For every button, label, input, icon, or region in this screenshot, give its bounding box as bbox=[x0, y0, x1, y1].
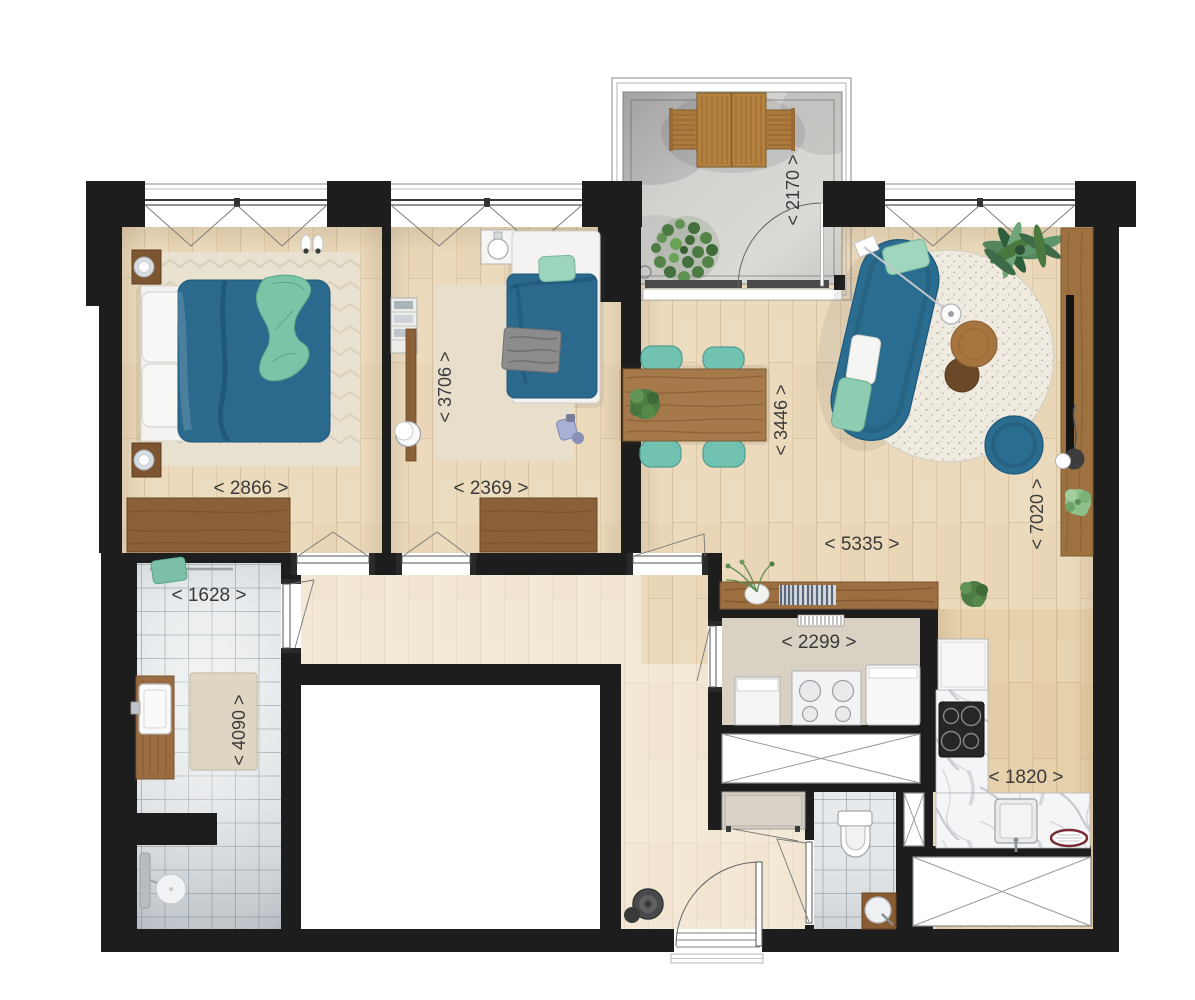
svg-text:< 2170 >: < 2170 > bbox=[783, 154, 803, 225]
svg-text:< 2369 >: < 2369 > bbox=[453, 478, 528, 499]
svg-text:< 3446 >: < 3446 > bbox=[771, 384, 791, 455]
svg-text:< 7020 >: < 7020 > bbox=[1027, 478, 1047, 549]
svg-text:< 1628 >: < 1628 > bbox=[171, 585, 246, 606]
svg-text:< 3706 >: < 3706 > bbox=[435, 351, 455, 422]
svg-text:< 1820 >: < 1820 > bbox=[988, 767, 1063, 788]
svg-text:< 4090 >: < 4090 > bbox=[229, 694, 249, 765]
svg-text:< 5335 >: < 5335 > bbox=[824, 534, 899, 555]
svg-text:< 2299 >: < 2299 > bbox=[781, 632, 856, 653]
svg-text:< 2866 >: < 2866 > bbox=[213, 478, 288, 499]
